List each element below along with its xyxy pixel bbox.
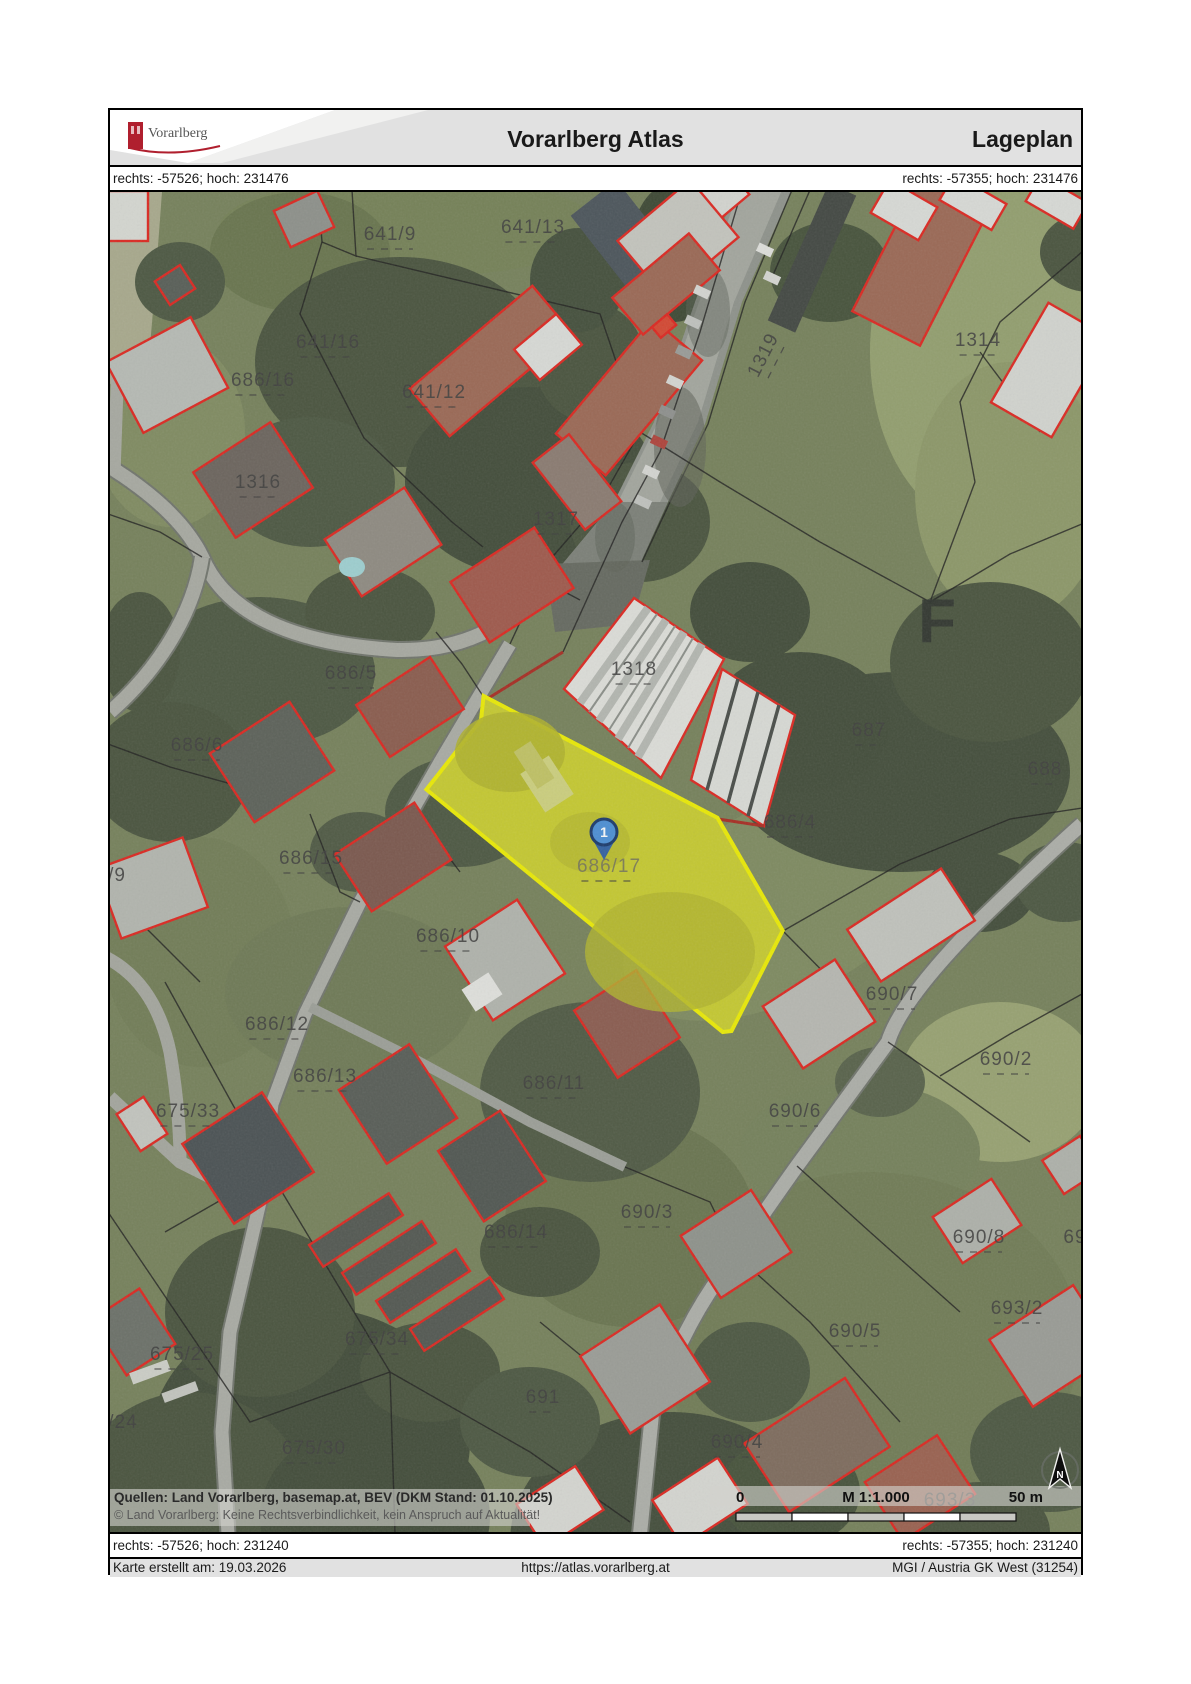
svg-text:0: 0 — [736, 1489, 744, 1506]
svg-text:Quellen: Land Vorarlberg, base: Quellen: Land Vorarlberg, basemap.at, BE… — [114, 1490, 553, 1505]
svg-text:M 1:1.000: M 1:1.000 — [842, 1489, 910, 1506]
svg-text:N: N — [1056, 1470, 1063, 1481]
svg-text:50 m: 50 m — [1009, 1489, 1043, 1506]
svg-text:© Land Vorarlberg: Keine Recht: © Land Vorarlberg: Keine Rechtsverbindli… — [114, 1508, 540, 1522]
